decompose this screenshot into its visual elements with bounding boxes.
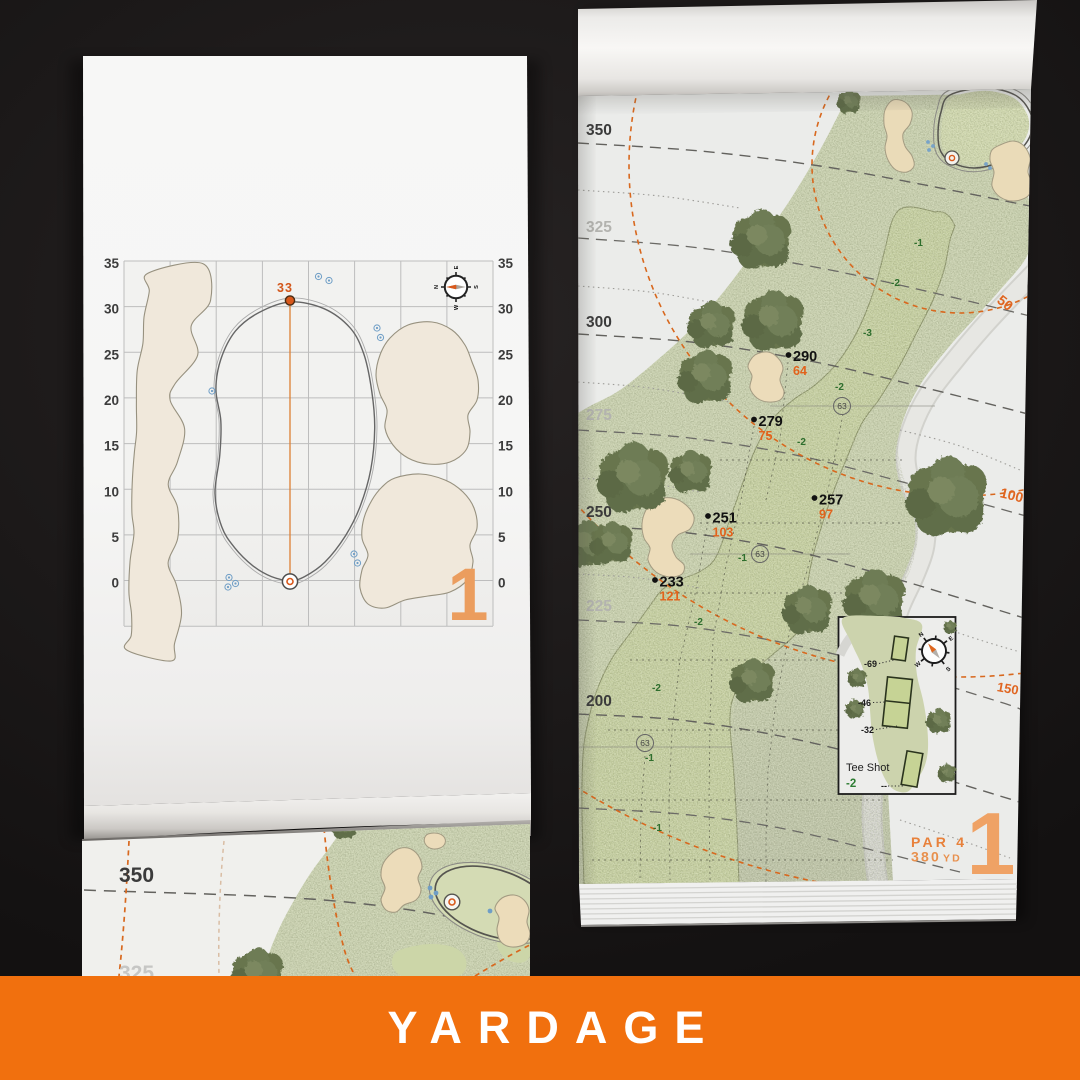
svg-text:233: 233 [660,575,684,591]
svg-text:64: 64 [793,364,807,378]
svg-text:290: 290 [793,349,817,365]
svg-text:63: 63 [837,401,847,411]
svg-text:0: 0 [498,576,506,591]
svg-text:-2: -2 [891,278,900,289]
svg-text:251: 251 [713,511,737,527]
svg-text:350: 350 [119,864,154,887]
svg-text:25: 25 [104,347,120,362]
svg-text:W: W [454,304,460,310]
svg-text:1: 1 [447,553,488,636]
svg-text:20: 20 [498,393,513,408]
svg-text:35: 35 [498,256,514,271]
svg-text:-2: -2 [846,778,856,790]
svg-text:121: 121 [660,590,681,604]
svg-text:Tee Shot: Tee Shot [846,762,889,774]
svg-text:5: 5 [111,530,119,545]
svg-text:N: N [434,285,440,289]
svg-text:30: 30 [498,302,513,317]
svg-text:-1: -1 [653,823,662,834]
svg-text:15: 15 [498,439,514,454]
svg-text:--: -- [881,781,887,791]
svg-text:-1: -1 [645,753,654,764]
svg-text:25: 25 [498,347,514,362]
svg-text:-46: -46 [858,698,871,708]
svg-text:-1: -1 [914,238,923,249]
svg-text:-2: -2 [694,617,703,628]
svg-text:279: 279 [759,414,783,430]
svg-text:10: 10 [498,484,513,499]
svg-text:15: 15 [104,439,120,454]
svg-text:S: S [474,285,480,289]
svg-text:257: 257 [819,493,843,509]
svg-text:20: 20 [104,393,119,408]
svg-text:33: 33 [277,281,293,295]
svg-text:63: 63 [640,738,650,748]
svg-text:103: 103 [713,526,734,540]
svg-text:10: 10 [104,484,119,499]
svg-text:E: E [454,265,460,269]
svg-text:-69: -69 [864,659,877,669]
svg-text:63: 63 [755,549,765,559]
svg-text:97: 97 [819,508,833,522]
svg-text:-2: -2 [835,382,844,393]
svg-text:-2: -2 [652,683,661,694]
svg-text:-32: -32 [861,725,874,735]
svg-text:-3: -3 [863,328,872,339]
svg-text:75: 75 [759,429,773,443]
svg-text:30: 30 [104,302,119,317]
svg-text:5: 5 [498,530,506,545]
svg-text:0: 0 [111,576,119,591]
svg-text:-2: -2 [797,437,806,448]
svg-text:YARDAGE: YARDAGE [388,1002,721,1053]
svg-text:-1: -1 [738,553,747,564]
svg-text:1: 1 [967,794,1016,893]
svg-text:35: 35 [104,256,120,271]
